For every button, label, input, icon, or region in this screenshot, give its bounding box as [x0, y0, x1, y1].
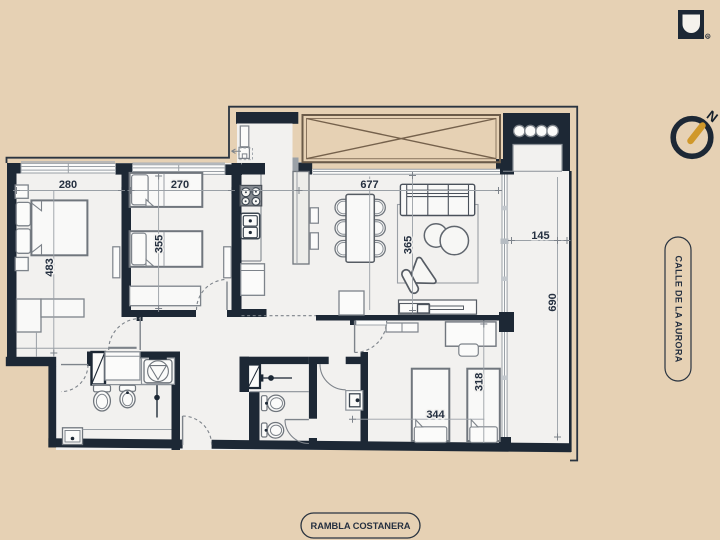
svg-text:344: 344 [426, 409, 445, 421]
svg-text:677: 677 [360, 179, 378, 191]
svg-text:RAMBLA COSTANERA: RAMBLA COSTANERA [311, 521, 411, 531]
svg-text:483: 483 [44, 258, 56, 276]
svg-text:280: 280 [59, 179, 77, 191]
svg-text:355: 355 [154, 235, 166, 253]
svg-text:R: R [706, 35, 709, 39]
svg-text:318: 318 [474, 373, 486, 391]
svg-text:CALLE DE LA AURORA: CALLE DE LA AURORA [674, 255, 684, 362]
svg-text:145: 145 [531, 230, 549, 242]
svg-text:270: 270 [171, 179, 189, 191]
svg-text:690: 690 [547, 293, 559, 311]
svg-text:365: 365 [403, 236, 415, 254]
